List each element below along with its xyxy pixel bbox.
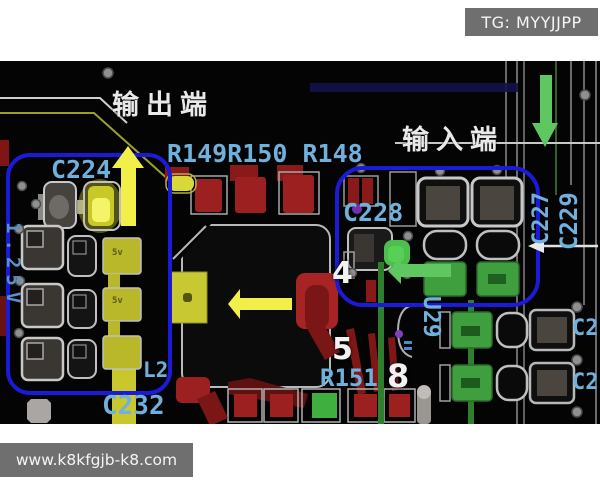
label-5v-pad-a: 5v: [112, 249, 123, 258]
label-pin8: 8: [387, 360, 409, 394]
label-c228: C228: [343, 200, 403, 226]
yellow-pad-large: [170, 272, 207, 323]
label-input-terminal: 输入端: [402, 127, 504, 155]
screenshot-root: 输出端 输入端 C224 R149R150 R148 C228 R151 C23…: [0, 0, 600, 480]
label-resistor-row: R149R150 R148: [167, 141, 363, 167]
label-r151: R151: [320, 366, 378, 391]
watermark-website-text: www.k8kfgjb-k8.com: [16, 451, 177, 469]
label-l2: L2: [143, 359, 168, 381]
label-c227: C227: [530, 192, 553, 245]
label-output-terminal: 输出端: [112, 92, 214, 120]
label-c2-partial-top: C2: [572, 317, 599, 340]
label-rail-voltage: 1.25V: [2, 222, 22, 309]
watermark-telegram-text: TG: MYYJJPP: [481, 13, 581, 32]
label-c2-partial-bottom: C2: [572, 371, 599, 394]
label-pin4: 4: [332, 258, 353, 290]
label-u29: U29: [419, 296, 443, 338]
left-capacitor-bank: [22, 226, 141, 380]
watermark-telegram: TG: MYYJJPP: [465, 8, 598, 36]
label-c224: C224: [51, 157, 111, 183]
label-pin5: 5: [332, 334, 353, 366]
label-c229: C229: [557, 192, 582, 250]
label-5v-pad-b: 5v: [112, 297, 123, 306]
watermark-website: www.k8kfgjb-k8.com: [0, 443, 193, 477]
pcb-photo: [0, 61, 600, 424]
label-c232: C232: [102, 393, 165, 420]
